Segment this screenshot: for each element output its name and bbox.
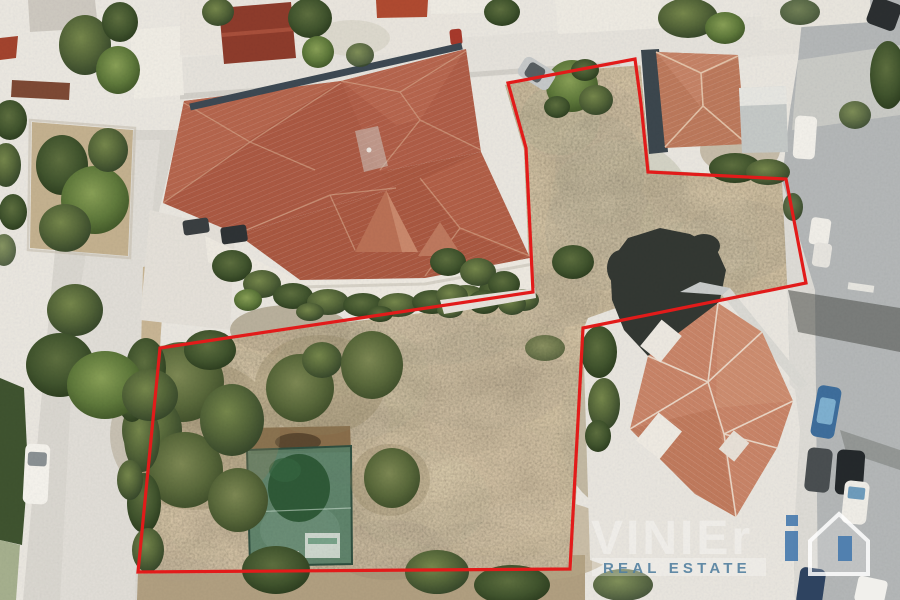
svg-text:REAL ESTATE: REAL ESTATE bbox=[603, 560, 751, 577]
svg-text:VINIEr: VINIEr bbox=[591, 512, 753, 565]
